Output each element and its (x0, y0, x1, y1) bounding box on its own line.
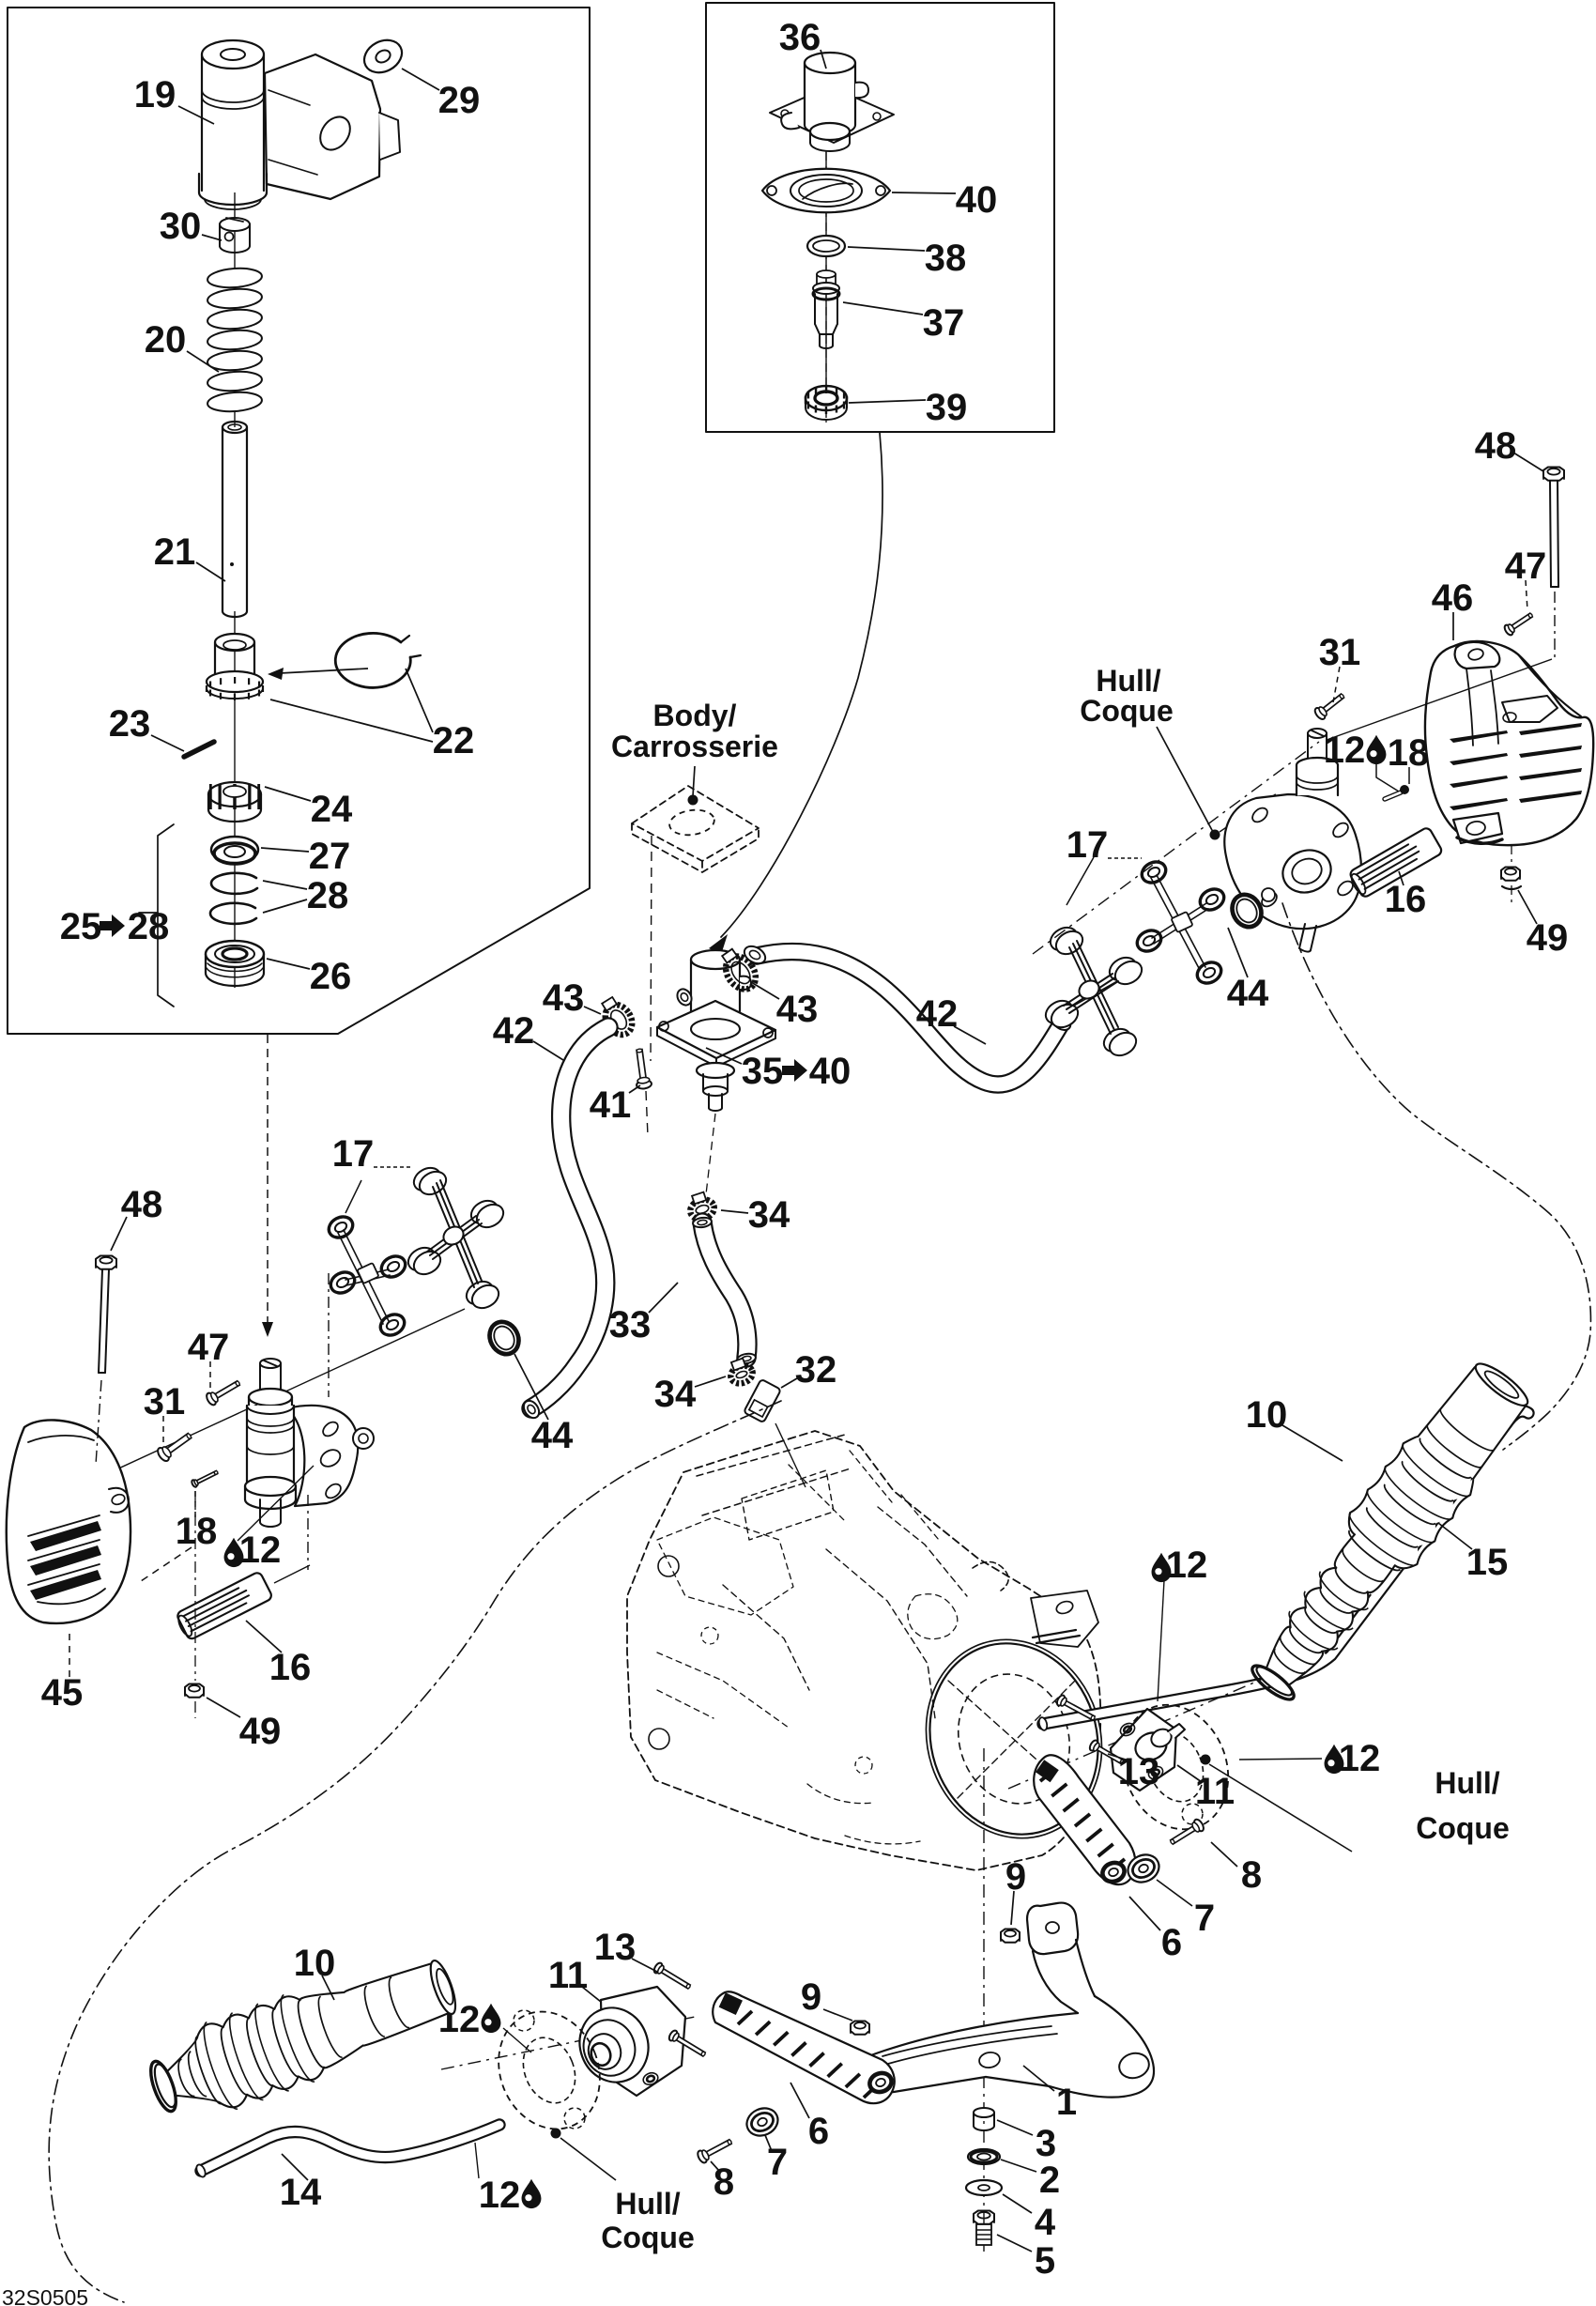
svg-text:44: 44 (531, 1415, 574, 1456)
svg-text:29: 29 (438, 80, 481, 121)
svg-text:48: 48 (121, 1184, 163, 1225)
svg-text:6: 6 (808, 2111, 829, 2152)
svg-text:41: 41 (590, 1084, 632, 1126)
svg-text:18: 18 (1388, 732, 1430, 774)
svg-text:34: 34 (654, 1374, 697, 1415)
svg-text:16: 16 (269, 1647, 312, 1688)
svg-text:28: 28 (307, 875, 349, 916)
svg-text:43: 43 (543, 977, 585, 1019)
svg-text:24: 24 (311, 789, 353, 830)
svg-text:13: 13 (594, 1927, 637, 1968)
svg-text:27: 27 (309, 836, 351, 877)
svg-text:10: 10 (294, 1943, 336, 1984)
svg-text:15: 15 (1466, 1542, 1509, 1583)
svg-text:12: 12 (1324, 730, 1366, 771)
svg-text:Coque: Coque (1416, 1811, 1510, 1845)
svg-text:6: 6 (1161, 1922, 1182, 1963)
svg-text:47: 47 (188, 1327, 230, 1368)
svg-text:32S0505: 32S0505 (2, 2285, 88, 2306)
svg-text:11: 11 (548, 1955, 588, 1996)
svg-text:48: 48 (1475, 425, 1517, 467)
svg-text:Hull/: Hull/ (1096, 664, 1160, 698)
svg-text:9: 9 (1005, 1856, 1026, 1898)
svg-text:10: 10 (1246, 1394, 1288, 1436)
svg-text:26: 26 (310, 956, 352, 997)
svg-text:Carrosserie: Carrosserie (611, 730, 778, 763)
svg-text:7: 7 (1194, 1898, 1215, 1939)
svg-text:42: 42 (493, 1010, 535, 1052)
svg-text:23: 23 (109, 703, 151, 745)
svg-text:40: 40 (809, 1051, 852, 1092)
svg-text:36: 36 (779, 17, 821, 58)
svg-text:16: 16 (1385, 879, 1427, 920)
svg-text:31: 31 (144, 1381, 186, 1422)
svg-text:Coque: Coque (1080, 694, 1174, 728)
svg-text:43: 43 (776, 989, 819, 1030)
svg-text:Coque: Coque (601, 2221, 695, 2254)
svg-text:2: 2 (1039, 2160, 1060, 2201)
svg-text:19: 19 (134, 74, 176, 115)
svg-text:44: 44 (1227, 973, 1269, 1014)
svg-text:Hull/: Hull/ (615, 2187, 680, 2221)
svg-text:39: 39 (926, 387, 968, 428)
svg-text:8: 8 (1241, 1854, 1262, 1896)
svg-text:49: 49 (239, 1711, 282, 1752)
svg-text:21: 21 (154, 531, 196, 573)
svg-text:18: 18 (176, 1511, 218, 1552)
svg-text:35: 35 (742, 1051, 784, 1092)
svg-text:20: 20 (145, 319, 187, 361)
svg-text:33: 33 (609, 1304, 652, 1345)
svg-text:3: 3 (1036, 2123, 1056, 2164)
svg-text:Hull/: Hull/ (1435, 1766, 1499, 1800)
svg-text:28: 28 (128, 906, 170, 947)
svg-text:9: 9 (801, 1976, 821, 2018)
svg-text:17: 17 (332, 1133, 375, 1175)
svg-text:11: 11 (1195, 1771, 1235, 1812)
svg-text:32: 32 (795, 1349, 837, 1391)
svg-text:12: 12 (1339, 1738, 1381, 1779)
svg-text:12: 12 (239, 1530, 282, 1571)
svg-text:42: 42 (916, 993, 959, 1035)
svg-text:4: 4 (1035, 2202, 1056, 2243)
svg-text:13: 13 (1118, 1751, 1160, 1792)
svg-text:12: 12 (1166, 1545, 1208, 1586)
svg-text:49: 49 (1527, 917, 1569, 959)
svg-text:22: 22 (433, 720, 475, 761)
svg-text:34: 34 (748, 1194, 790, 1236)
svg-text:40: 40 (956, 179, 998, 221)
svg-text:37: 37 (923, 302, 965, 344)
svg-text:30: 30 (160, 206, 202, 247)
svg-text:38: 38 (925, 238, 967, 279)
svg-text:1: 1 (1056, 2082, 1077, 2123)
svg-text:Body/: Body/ (653, 699, 737, 732)
svg-text:12: 12 (479, 2175, 521, 2216)
svg-text:25: 25 (60, 906, 102, 947)
svg-text:14: 14 (280, 2172, 322, 2213)
svg-text:17: 17 (1067, 824, 1109, 866)
svg-text:5: 5 (1035, 2240, 1055, 2282)
svg-text:45: 45 (41, 1672, 84, 1714)
svg-text:46: 46 (1432, 577, 1474, 619)
